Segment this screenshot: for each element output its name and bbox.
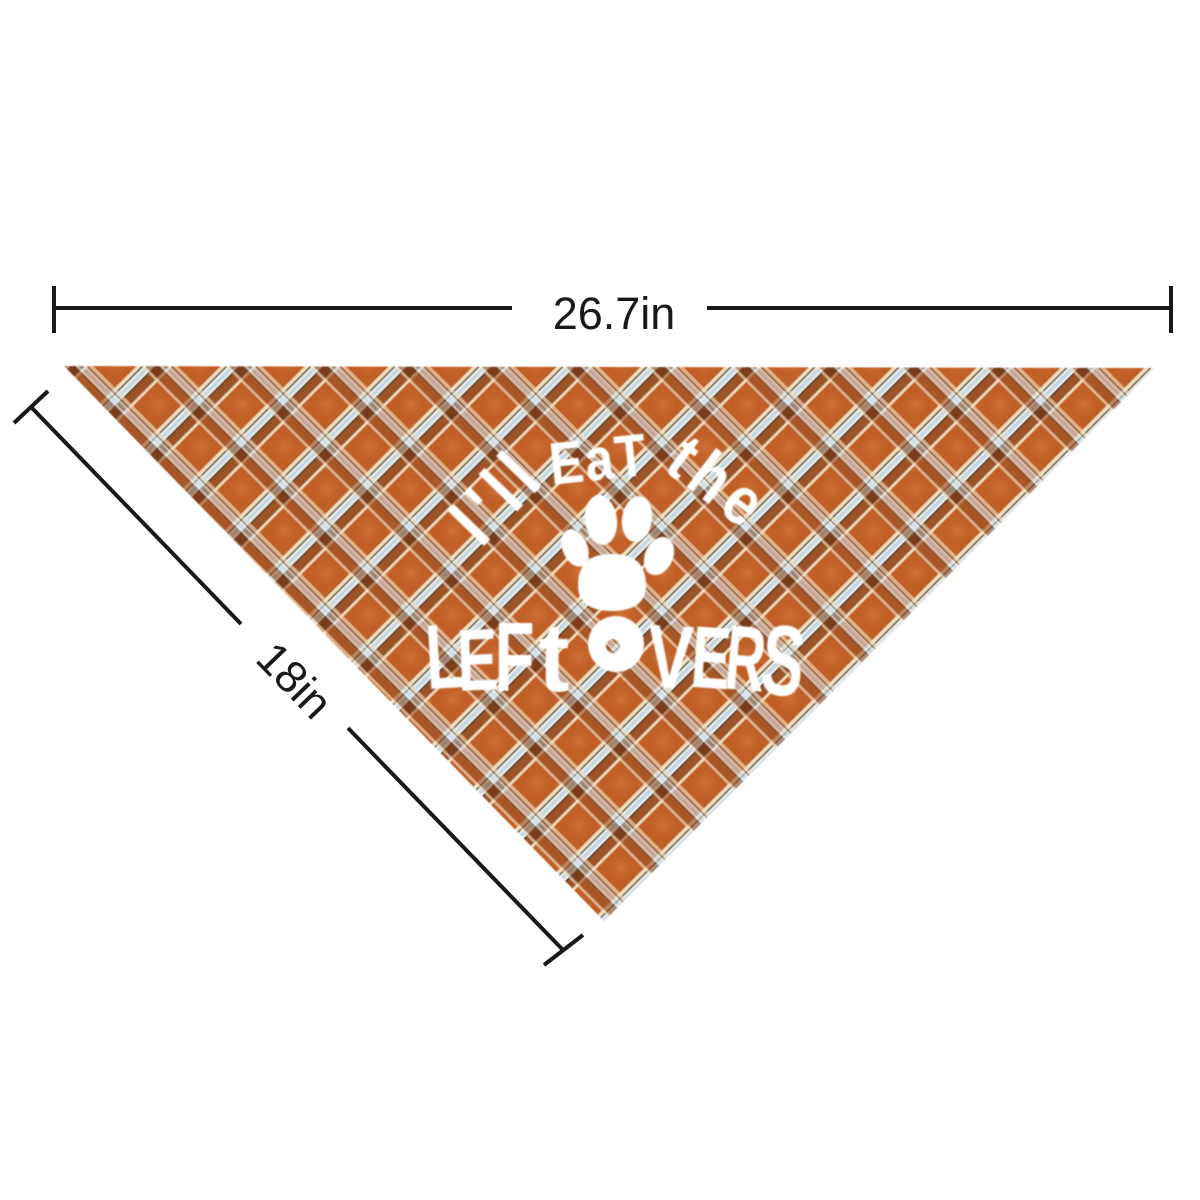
svg-text:F: F [494,602,534,712]
svg-text:26.7in: 26.7in [553,288,676,339]
svg-text:E: E [456,611,500,710]
svg-text:t: t [538,603,569,713]
svg-text:V: V [645,606,696,708]
svg-text:EaT: EaT [546,421,651,498]
